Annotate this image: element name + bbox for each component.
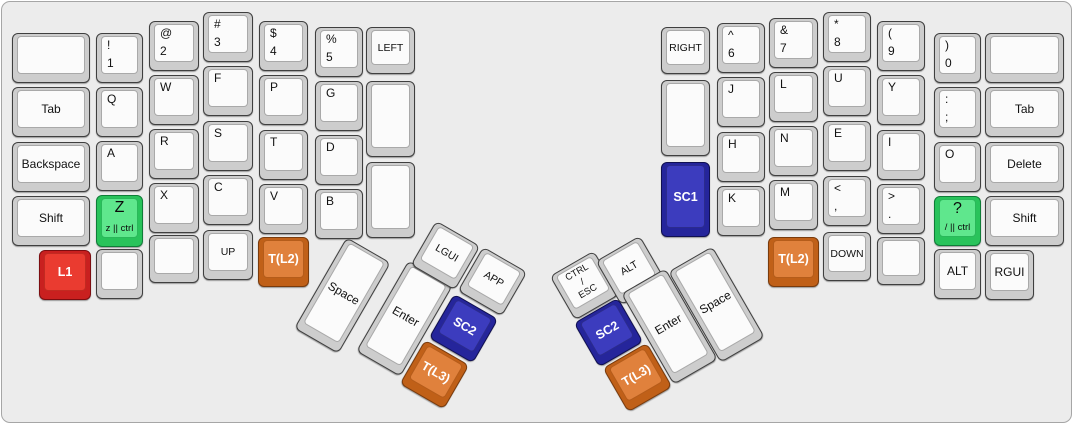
key-6-sublabel: 6 [728,46,759,60]
key-y-top: Y [882,78,920,116]
key-ctrl-esc-label: CTRL / ESC [564,263,602,304]
key-e[interactable]: E [823,121,871,171]
key-slash-top: ?/ || ctrl [939,199,976,237]
key-right-arrow-label: RIGHT [669,42,702,54]
key-n[interactable]: N [769,126,818,176]
key-tab-left-top: Tab [17,90,85,128]
key-6-top: ^6 [722,26,760,64]
key-d[interactable]: D [315,135,363,185]
key-z-sublabel: z || ctrl [106,223,134,234]
key-9[interactable]: (9 [877,21,925,71]
key-blank-left-col2-bottom-top [101,252,138,290]
key-w-label: W [160,80,193,94]
key-l-top: L [774,75,813,113]
key-0-sublabel: 0 [945,56,975,70]
key-b-top: B [320,192,358,230]
key-q-top: Q [101,90,138,128]
key-shift-left[interactable]: Shift [12,196,90,246]
key-blank-right-col5-bottom[interactable] [877,237,925,285]
key-2-label: @ [160,26,193,40]
key-space-left-label: Space [326,278,362,307]
keyboard-layout-stage: TabBackspaceShiftL1!1QAZz || ctrl@2WRX#3… [0,0,1073,424]
key-q-label: Q [107,92,137,106]
key-sc2-left-top: SC2 [437,299,492,353]
key-app-label: APP [482,268,506,289]
key-u-label: U [834,71,865,85]
key-o-label: O [945,147,975,161]
key-i-label: I [888,135,919,149]
key-j[interactable]: J [717,77,765,127]
key-e-top: E [828,124,866,162]
key-1-sublabel: 1 [107,56,137,70]
key-5-sublabel: 5 [326,50,357,64]
key-up-top: UP [208,233,248,271]
key-f-label: F [214,71,247,85]
key-blank-left-outer-top-top [17,36,85,74]
key-tab-left[interactable]: Tab [12,87,90,137]
key-5-label: % [326,32,357,46]
key-semicolon-sublabel: ; [945,110,975,124]
key-tab-left-label: Tab [41,102,60,116]
key-down-label: DOWN [830,248,863,260]
key-f-top: F [208,69,248,107]
key-blank-left-col2-bottom[interactable] [96,249,143,299]
key-5-top: %5 [320,30,358,68]
key-comma-sublabel: , [834,199,865,213]
key-r-label: R [160,134,193,148]
key-blank-right-outer-top[interactable] [985,33,1064,83]
key-app-top: APP [466,252,521,306]
key-blank-left-col7-mid[interactable] [366,81,415,157]
key-y[interactable]: Y [877,75,925,125]
key-x-top: X [154,186,194,224]
key-alt-right-top: ALT [939,252,976,290]
key-up-label: UP [221,246,236,258]
key-d-top: D [320,138,358,176]
key-t-l2-left[interactable]: T(L2) [258,237,309,287]
key-tab-right-top: Tab [990,90,1059,128]
key-2[interactable]: @2 [149,21,199,71]
key-7-top: &7 [774,21,813,59]
key-t[interactable]: T [259,130,308,180]
key-alt-right[interactable]: ALT [934,249,981,299]
key-g[interactable]: G [315,81,363,131]
key-c[interactable]: C [203,175,253,225]
key-t-l2-left-top: T(L2) [263,240,304,278]
key-4-label: $ [270,26,302,40]
key-h[interactable]: H [717,132,765,182]
key-r-top: R [154,132,194,170]
key-0-label: ) [945,38,975,52]
key-b-label: B [326,194,357,208]
key-t-top: T [264,133,303,171]
key-0[interactable]: )0 [934,33,981,83]
key-down[interactable]: DOWN [823,232,871,281]
key-t-l2-left-label: T(L2) [268,252,299,266]
key-blank-left-outer-top[interactable] [12,33,90,83]
key-v[interactable]: V [259,184,308,234]
key-left-arrow-top: LEFT [371,30,410,65]
key-7[interactable]: &7 [769,18,818,68]
key-o[interactable]: O [934,142,981,192]
key-8-sublabel: 8 [834,35,865,49]
key-semicolon-top: :; [939,90,976,128]
key-j-label: J [728,82,759,96]
key-shift-left-top: Shift [17,199,85,237]
key-comma-label: < [834,181,865,195]
key-5[interactable]: %5 [315,27,363,77]
key-period-top: >. [882,187,920,225]
key-sc1-top: SC1 [666,165,705,228]
key-sc1[interactable]: SC1 [661,162,710,237]
key-space-right-label: Space [697,287,733,316]
key-s[interactable]: S [203,121,253,171]
key-shift-right[interactable]: Shift [985,196,1064,246]
key-j-top: J [722,80,760,118]
key-u[interactable]: U [823,66,871,116]
key-2-sublabel: 2 [160,44,193,58]
key-w-top: W [154,78,194,116]
key-delete-label: Delete [1007,157,1042,171]
key-alt-right-label: ALT [947,264,968,278]
key-9-top: (9 [882,24,920,62]
key-sc2-left-label: SC2 [451,314,479,338]
key-1-label: ! [107,38,137,52]
key-1[interactable]: !1 [96,33,143,83]
key-y-label: Y [888,80,919,94]
key-blank-right-col1-mid[interactable] [661,80,710,156]
key-a[interactable]: A [96,141,143,191]
key-n-top: N [774,129,813,167]
key-l1[interactable]: L1 [39,250,91,300]
key-p-top: P [264,78,303,116]
key-f[interactable]: F [203,66,253,116]
key-m-top: M [774,183,813,221]
key-down-top: DOWN [828,235,866,272]
key-blank-right-outer-top-top [990,36,1059,74]
key-k-label: K [728,191,759,205]
key-4-sublabel: 4 [270,44,302,58]
key-g-label: G [326,86,357,100]
key-x-label: X [160,188,193,202]
key-q[interactable]: Q [96,87,143,137]
key-s-label: S [214,126,247,140]
key-sc1-label: SC1 [673,190,697,204]
key-8-top: *8 [828,15,866,53]
key-blank-left-col7-mid-top [371,84,410,148]
key-enter-right-label: Enter [652,311,684,337]
key-v-top: V [264,187,303,225]
key-h-top: H [722,135,760,173]
key-n-label: N [780,131,812,145]
key-delete[interactable]: Delete [985,142,1064,192]
key-8-label: * [834,17,865,31]
key-t-l3-right-label: T(L3) [619,361,652,388]
key-9-label: ( [888,26,919,40]
key-rgui-top: RGUI [990,253,1029,291]
key-p[interactable]: P [259,75,308,125]
key-c-top: C [208,178,248,216]
keyboard-panel: TabBackspaceShiftL1!1QAZz || ctrl@2WRX#3… [1,1,1072,423]
key-4[interactable]: $4 [259,21,308,71]
key-k-top: K [722,189,760,227]
key-t-l3-left-label: T(L3) [419,358,452,385]
key-l1-top: L1 [44,253,86,291]
key-lgui-label: LGUI [433,242,460,265]
key-w[interactable]: W [149,75,199,125]
key-v-label: V [270,189,302,203]
key-l-label: L [780,77,812,91]
key-period-label: > [888,189,919,203]
key-3-sublabel: 3 [214,35,247,49]
key-backspace[interactable]: Backspace [12,142,90,192]
key-right-arrow-top: RIGHT [666,30,705,65]
key-3[interactable]: #3 [203,12,253,62]
key-up[interactable]: UP [203,230,253,280]
key-blank-left-col3-bottom-top [154,238,194,274]
key-enter-left-label: Enter [390,303,422,329]
key-a-label: A [107,146,137,160]
key-z-label: Z [115,199,125,217]
key-comma[interactable]: <, [823,176,871,226]
key-2-top: @2 [154,24,194,62]
key-i[interactable]: I [877,130,925,180]
key-shift-right-label: Shift [1012,211,1036,225]
key-alt-right-thumb-label: ALT [618,258,640,278]
key-l[interactable]: L [769,72,818,122]
key-tab-right-label: Tab [1015,102,1034,116]
key-a-top: A [101,144,138,182]
key-semicolon[interactable]: :; [934,87,981,137]
key-x[interactable]: X [149,183,199,233]
key-blank-left-col3-bottom[interactable] [149,235,199,283]
key-rgui-label: RGUI [995,265,1025,279]
key-t-label: T [270,135,302,149]
key-3-top: #3 [208,15,248,53]
key-p-label: P [270,80,302,94]
key-left-arrow[interactable]: LEFT [366,27,415,74]
key-i-top: I [882,133,920,171]
key-8[interactable]: *8 [823,12,871,62]
key-sc2-right-label: SC2 [593,318,621,342]
key-u-top: U [828,69,866,107]
key-d-label: D [326,140,357,154]
key-tab-right[interactable]: Tab [985,87,1064,137]
key-rgui[interactable]: RGUI [985,250,1034,300]
key-t-l2-right-label: T(L2) [778,252,809,266]
key-period[interactable]: >. [877,184,925,234]
key-l1-label: L1 [58,265,73,279]
key-r[interactable]: R [149,129,199,179]
key-blank-right-col1-mid-top [666,83,705,147]
key-delete-top: Delete [990,145,1059,183]
key-s-top: S [208,124,248,162]
key-backspace-top: Backspace [17,145,85,183]
key-slash-sublabel: / || ctrl [945,222,971,233]
key-slash-label: ? [953,200,962,218]
key-z[interactable]: Zz || ctrl [96,195,143,247]
key-left-arrow-label: LEFT [378,42,404,54]
key-7-label: & [780,23,812,37]
key-shift-left-label: Shift [39,211,63,225]
key-k[interactable]: K [717,186,765,236]
key-7-sublabel: 7 [780,41,812,55]
key-shift-right-top: Shift [990,199,1059,237]
key-m-label: M [780,185,812,199]
key-lgui-top: LGUI [419,226,474,280]
key-6[interactable]: ^6 [717,23,765,73]
key-right-arrow[interactable]: RIGHT [661,27,710,74]
key-blank-left-col7-bottom-top [371,165,410,229]
key-t-l2-right[interactable]: T(L2) [768,237,819,287]
key-g-top: G [320,84,358,122]
key-h-label: H [728,137,759,151]
key-semicolon-label: : [945,92,975,106]
key-blank-right-col5-bottom-top [882,240,920,276]
key-period-sublabel: . [888,207,919,221]
key-9-sublabel: 9 [888,44,919,58]
key-slash[interactable]: ?/ || ctrl [934,196,981,246]
key-1-top: !1 [101,36,138,74]
key-3-label: # [214,17,247,31]
key-b[interactable]: B [315,189,363,239]
key-e-label: E [834,126,865,140]
key-0-top: )0 [939,36,976,74]
key-t-l2-right-top: T(L2) [773,240,814,278]
key-o-top: O [939,145,976,183]
key-4-top: $4 [264,24,303,62]
key-z-top: Zz || ctrl [101,198,138,238]
key-backspace-label: Backspace [22,157,81,171]
key-comma-top: <, [828,179,866,217]
key-c-label: C [214,180,247,194]
key-6-label: ^ [728,28,759,42]
key-m[interactable]: M [769,180,818,230]
key-blank-left-col7-bottom[interactable] [366,162,415,238]
